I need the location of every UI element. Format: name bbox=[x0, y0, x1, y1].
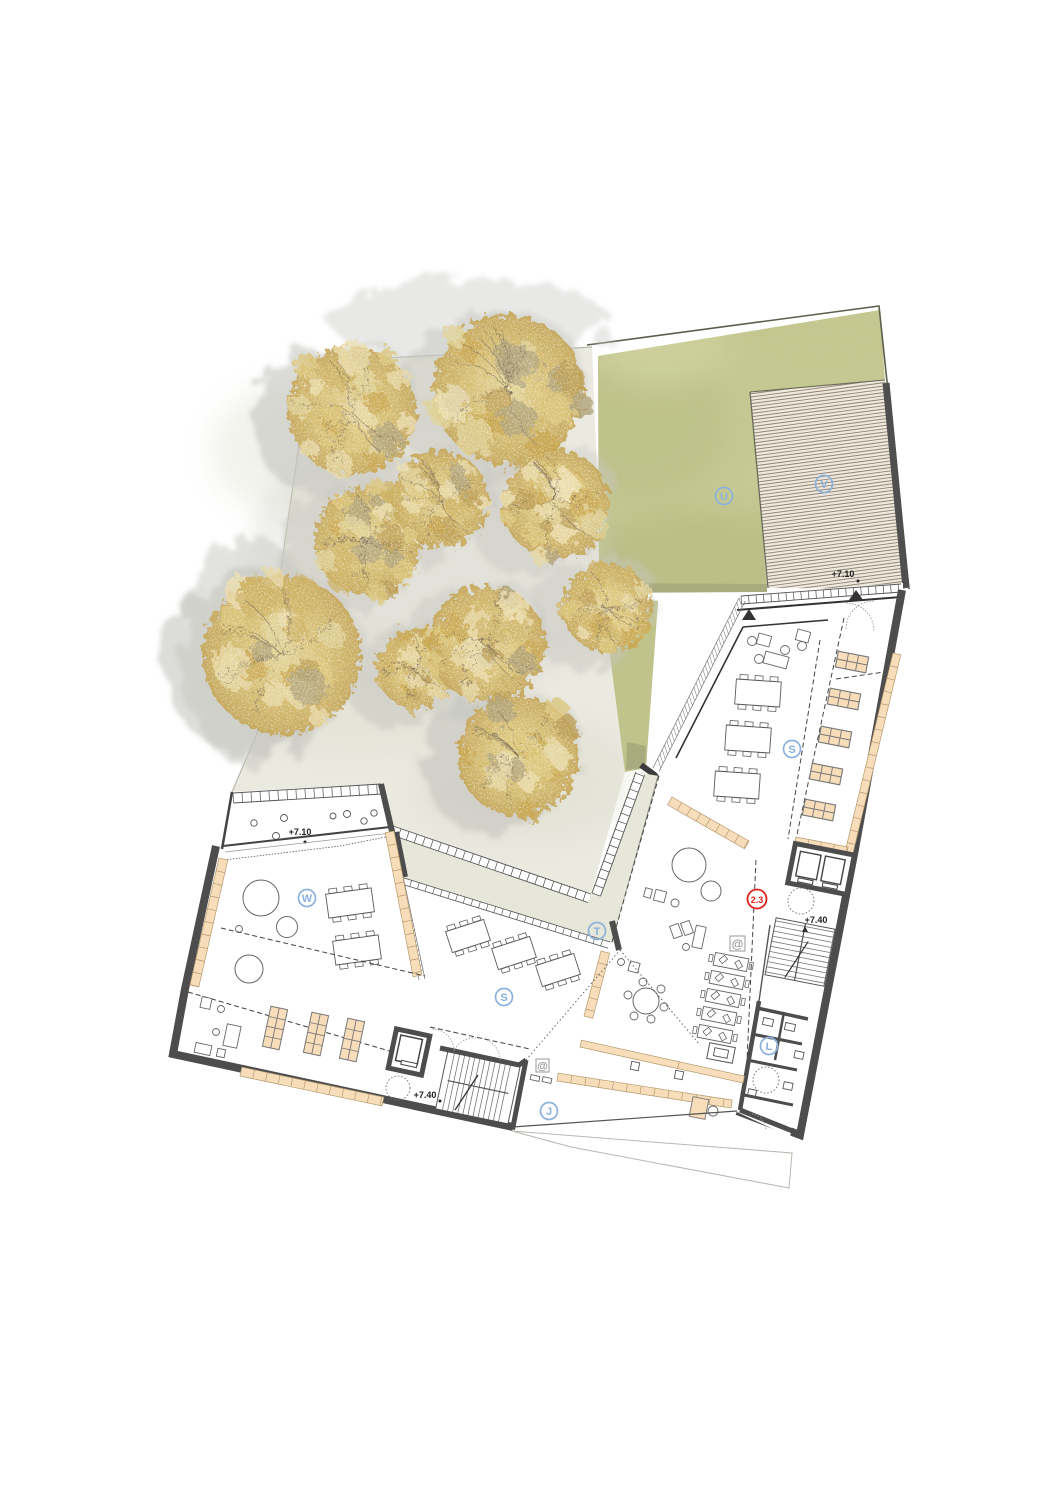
svg-text:W: W bbox=[302, 893, 313, 905]
svg-text:+7.10: +7.10 bbox=[832, 569, 855, 579]
svg-text:U: U bbox=[720, 491, 728, 503]
svg-text:V: V bbox=[820, 479, 828, 491]
svg-text:J: J bbox=[546, 1106, 552, 1118]
svg-text:T: T bbox=[594, 926, 601, 938]
svg-text:@: @ bbox=[537, 1061, 548, 1073]
svg-text:+7.40: +7.40 bbox=[414, 1090, 437, 1100]
svg-text:S: S bbox=[788, 744, 795, 756]
svg-text:S: S bbox=[500, 992, 507, 1004]
svg-text:@: @ bbox=[732, 937, 744, 951]
svg-text:2.3: 2.3 bbox=[751, 895, 764, 905]
svg-text:+7.40: +7.40 bbox=[805, 915, 828, 925]
svg-text:L: L bbox=[766, 1041, 773, 1053]
